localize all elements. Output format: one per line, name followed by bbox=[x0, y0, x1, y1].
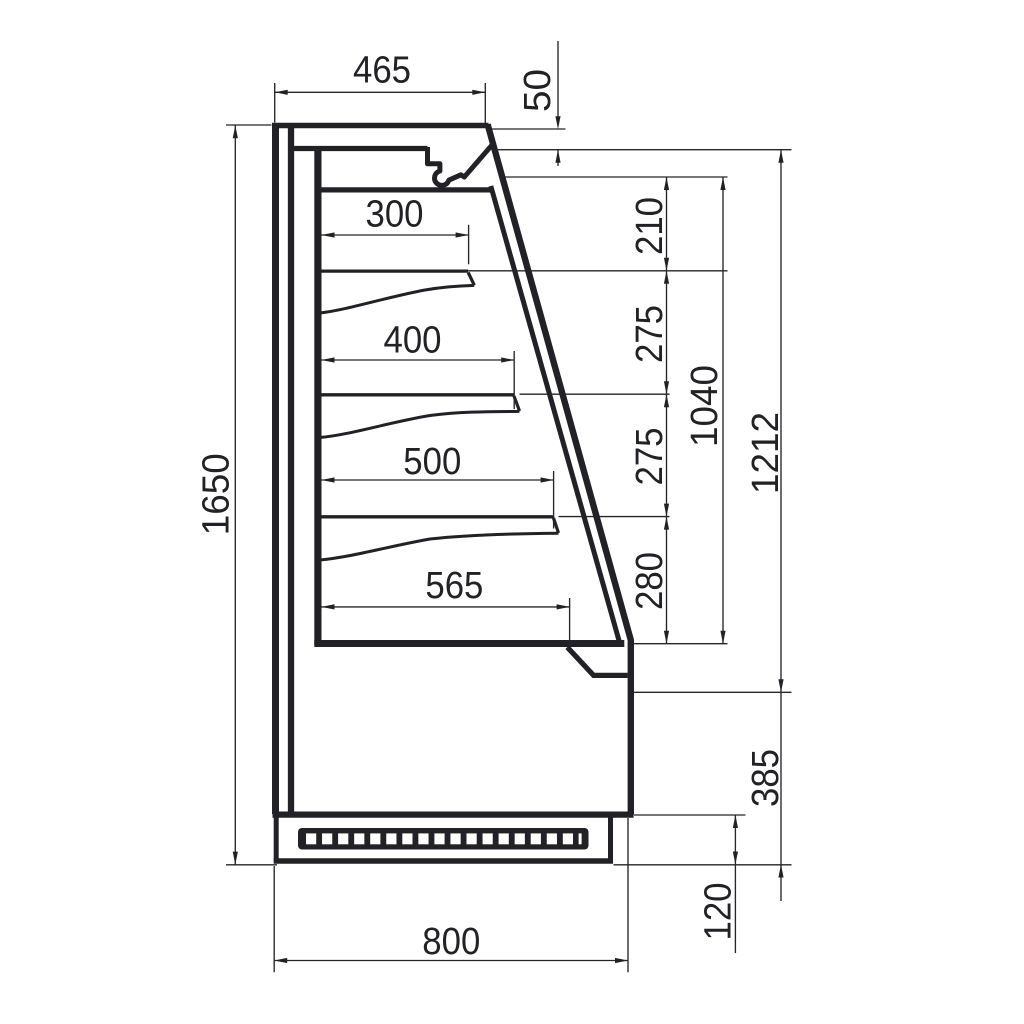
svg-text:385: 385 bbox=[745, 749, 787, 807]
svg-text:275: 275 bbox=[629, 428, 671, 486]
svg-text:500: 500 bbox=[403, 441, 461, 483]
svg-text:280: 280 bbox=[629, 552, 671, 610]
svg-text:50: 50 bbox=[517, 69, 559, 112]
svg-text:210: 210 bbox=[629, 197, 671, 255]
svg-text:1040: 1040 bbox=[684, 365, 726, 447]
svg-text:565: 565 bbox=[425, 565, 483, 607]
svg-text:1212: 1212 bbox=[745, 412, 787, 494]
svg-text:300: 300 bbox=[366, 194, 424, 236]
svg-text:400: 400 bbox=[384, 320, 442, 362]
svg-text:120: 120 bbox=[698, 883, 740, 941]
svg-text:1650: 1650 bbox=[196, 453, 238, 535]
svg-text:465: 465 bbox=[353, 50, 411, 92]
svg-text:800: 800 bbox=[422, 921, 480, 963]
svg-text:275: 275 bbox=[629, 305, 671, 363]
